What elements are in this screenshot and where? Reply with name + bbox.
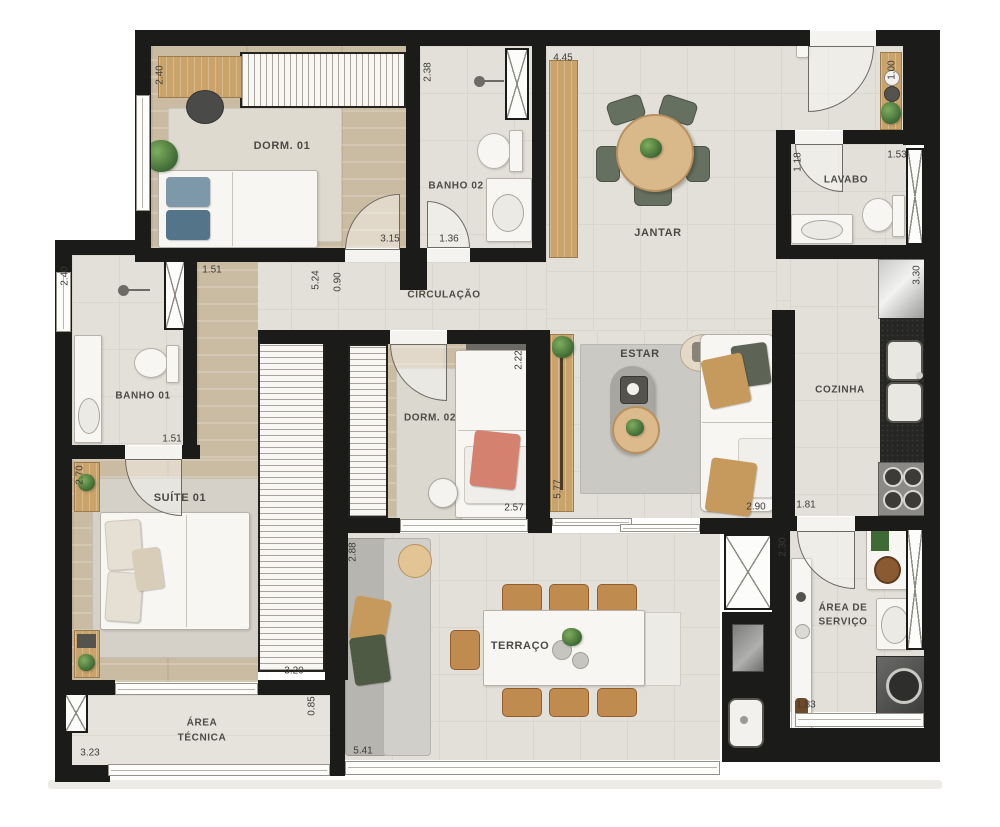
- wall-suite-bottom-b: [258, 680, 345, 695]
- dorm1-door-threshold: [345, 249, 400, 262]
- wall-stub-corridor: [400, 248, 427, 290]
- dimension-label: 2.30: [778, 537, 789, 556]
- servico-window: [795, 713, 924, 727]
- terraco-chair-top-3: [597, 584, 637, 613]
- dimension-label: 1.51: [202, 265, 221, 276]
- tecnica-access-door: [64, 693, 88, 733]
- wall-estar-cozinha: [772, 310, 795, 520]
- jantar-table-plant: [640, 138, 662, 158]
- wall-top: [135, 30, 810, 46]
- dimension-label: 1.81: [796, 500, 815, 511]
- dorm2-pillow-salmon: [469, 430, 521, 491]
- wall-terraco-top-c: [700, 518, 772, 534]
- dorm2-stool: [428, 478, 458, 508]
- dimension-label: 1.83: [796, 700, 815, 711]
- bbq-sink-drain: [740, 716, 748, 724]
- terraco-chair-top-2: [549, 584, 589, 613]
- dimension-label: 2.70: [75, 465, 86, 484]
- suite1-bed-foldline: [186, 515, 187, 627]
- terraco-chair-left: [450, 630, 480, 670]
- room-label-tecnica-line2: TÉCNICA: [178, 733, 227, 744]
- wall-cozinha-bottom-a: [772, 516, 797, 531]
- wall-circ-bottom: [258, 330, 390, 344]
- entry-threshold: [810, 31, 876, 46]
- dimension-label: 2.40: [155, 65, 166, 84]
- dimension-label: 5.24: [311, 270, 322, 289]
- wall-servico-bottom: [772, 728, 940, 762]
- banho1-sink: [78, 398, 100, 434]
- servico-door-threshold: [797, 517, 855, 531]
- estar-side-table-cup: [627, 383, 639, 395]
- room-label-dorm2: DORM. 02: [404, 413, 456, 424]
- dimension-label: 4.45: [553, 53, 572, 64]
- banho2-shower-glass: [505, 48, 529, 120]
- dimension-label: 0.85: [307, 696, 318, 715]
- banho1-shower-glass: [164, 260, 186, 330]
- dimension-label: 1.53: [887, 150, 906, 161]
- dimension-label: 1.18: [793, 152, 804, 171]
- room-label-servico-line2: SERVIÇO: [818, 617, 867, 628]
- wall-corner-topright: [903, 30, 940, 145]
- lavabo-closet: [906, 148, 924, 245]
- banho2-shower-arm: [484, 80, 504, 82]
- entry-shelf-bowl-2: [884, 86, 900, 102]
- dimension-label: 3.23: [80, 748, 99, 759]
- servico-counter-basin: [874, 556, 901, 584]
- wall-lavabo-top-b: [843, 130, 924, 144]
- cozinha-burner-2: [903, 467, 923, 487]
- wall-terraco-left: [330, 535, 345, 776]
- dorm1-bed-foldline: [232, 172, 233, 246]
- banho1-shower-arm: [128, 289, 150, 291]
- wall-right: [924, 130, 940, 762]
- terraco-chair-bottom-2: [549, 688, 589, 717]
- dimension-label: 2.40: [60, 266, 71, 285]
- dorm1-window: [136, 95, 150, 211]
- dorm2-wardrobe: [348, 344, 388, 518]
- room-label-terraco: TERRAÇO: [491, 640, 550, 652]
- wall-lavabo-top-a: [776, 130, 795, 144]
- terraco-chair-top-1: [502, 584, 542, 613]
- lavabo-toilet-tank: [892, 195, 905, 237]
- dimension-label: 5.77: [553, 479, 564, 498]
- wall-suite-left: [55, 445, 72, 695]
- room-label-banho2: BANHO 02: [428, 181, 483, 192]
- servico-cabinet-right: [906, 528, 924, 650]
- wall-dorm2-estar: [526, 330, 550, 532]
- dimension-label: 2.22: [514, 350, 525, 369]
- cozinha-burner-1: [883, 467, 903, 487]
- dimension-label: 3.15: [380, 234, 399, 245]
- banho2-toilet-bowl: [477, 133, 511, 169]
- dimension-label: 0.90: [333, 272, 344, 291]
- terraco-table-extension: [645, 612, 681, 686]
- dorm2-window: [400, 519, 528, 532]
- estar-round-table-plant: [626, 419, 644, 436]
- dimension-label: 2.90: [746, 502, 765, 513]
- servico-tank-basin: [881, 606, 909, 644]
- room-label-estar: ESTAR: [620, 348, 659, 360]
- banho1-door-threshold: [125, 446, 182, 459]
- dimension-label: 1.00: [887, 60, 898, 79]
- lavabo-sink: [801, 220, 843, 240]
- banho2-sink: [492, 194, 524, 232]
- jantar-sideboard: [549, 60, 578, 258]
- wall-banho2-jantar: [532, 30, 546, 262]
- terraco-rail: [345, 761, 720, 775]
- cozinha-burner-4: [903, 490, 923, 510]
- room-label-jantar: JANTAR: [634, 227, 681, 239]
- room-label-servico-line1: ÁREA DE: [819, 603, 868, 614]
- terraco-shaft: [724, 534, 772, 610]
- floor-plan: DORM. 01 BANHO 02 JANTAR LAVABO CIRCULAÇ…: [0, 0, 1000, 827]
- terraco-side-table: [398, 544, 432, 578]
- dimension-label: 2.57: [504, 503, 523, 514]
- terraco-chair-bottom-1: [502, 688, 542, 717]
- terraco-pillow-olive: [349, 634, 391, 687]
- room-label-cozinha: COZINHA: [815, 385, 865, 396]
- servico-counter-cloth: [871, 531, 889, 551]
- dimension-label: 1.51: [162, 434, 181, 445]
- dorm1-desk-chair: [186, 90, 224, 124]
- cozinha-faucet: [916, 372, 923, 379]
- tecnica-floor: [72, 695, 330, 765]
- servico-washer-door: [886, 668, 922, 704]
- terraco-chair-bottom-3: [597, 688, 637, 717]
- banho1-toilet-bowl: [134, 348, 168, 378]
- banho2-toilet-tank: [509, 130, 523, 172]
- room-label-tecnica-line1: ÁREA: [187, 718, 218, 729]
- wall-lavabo-bottom: [776, 245, 924, 259]
- wall-dorm1-banho2: [406, 30, 420, 248]
- suite1-wardrobe: [258, 336, 325, 672]
- banho2-door-threshold: [427, 249, 470, 262]
- dorm2-bed-foldline: [458, 430, 534, 431]
- outer-ledge: [48, 780, 942, 789]
- room-label-lavabo: LAVABO: [824, 175, 868, 186]
- terraco-centerpiece-plant: [562, 628, 582, 646]
- cozinha-burner-3: [883, 490, 903, 510]
- wall-banho2-bottom: [470, 248, 532, 262]
- estar-sofa-seatline: [702, 422, 772, 423]
- wall-terraco-top-a: [345, 518, 400, 533]
- dorm2-door-threshold: [390, 331, 447, 344]
- tecnica-rail: [108, 764, 330, 776]
- dimension-label: 5.41: [353, 746, 372, 757]
- estar-console-plant: [552, 336, 574, 358]
- dorm1-pillow-2: [166, 210, 210, 240]
- room-label-circulacao: CIRCULAÇÃO: [407, 290, 480, 301]
- wall-banho1-bottom-b: [182, 445, 200, 459]
- terraco-plate-2: [572, 652, 589, 669]
- suite1-window: [115, 683, 258, 695]
- estar-slider-door-right: [620, 524, 700, 532]
- wall-tecnica-bottom: [55, 765, 110, 782]
- room-label-dorm1: DORM. 01: [254, 140, 311, 152]
- room-label-banho1: BANHO 01: [115, 391, 170, 402]
- servico-cabinet-bowl: [795, 624, 810, 639]
- dimension-label: 3.30: [912, 265, 923, 284]
- suite1-nightstand-frame: [77, 634, 96, 648]
- bbq-grill-window: [732, 624, 764, 672]
- banho1-toilet-tank: [166, 345, 179, 383]
- cozinha-sink-2: [886, 382, 923, 423]
- dimension-label: 1.36: [439, 234, 458, 245]
- estar-console-handle: [560, 356, 563, 490]
- wall-terraco-top-b: [528, 518, 552, 533]
- room-label-suite1: SUÍTE 01: [154, 492, 207, 504]
- dorm1-wardrobe: [240, 52, 406, 108]
- hallway-floor: [197, 262, 258, 458]
- dimension-label: 2.38: [423, 62, 434, 81]
- entry-shelf-plant: [881, 102, 901, 124]
- dorm1-pillow-1: [166, 177, 210, 207]
- dimension-label: 2.88: [348, 542, 359, 561]
- wall-jantar-lavabo: [776, 130, 791, 253]
- dimension-label: 3.20: [284, 666, 303, 677]
- wall-banho1-bottom-a: [55, 445, 125, 459]
- suite1-throw-pillow: [131, 546, 165, 591]
- suite1-nightstand-bottom-plant: [78, 654, 95, 671]
- lavabo-door-threshold: [795, 131, 843, 144]
- servico-cabinet-knob: [796, 592, 806, 602]
- cozinha-doorway-floor: [776, 253, 790, 310]
- lavabo-toilet-bowl: [862, 198, 894, 232]
